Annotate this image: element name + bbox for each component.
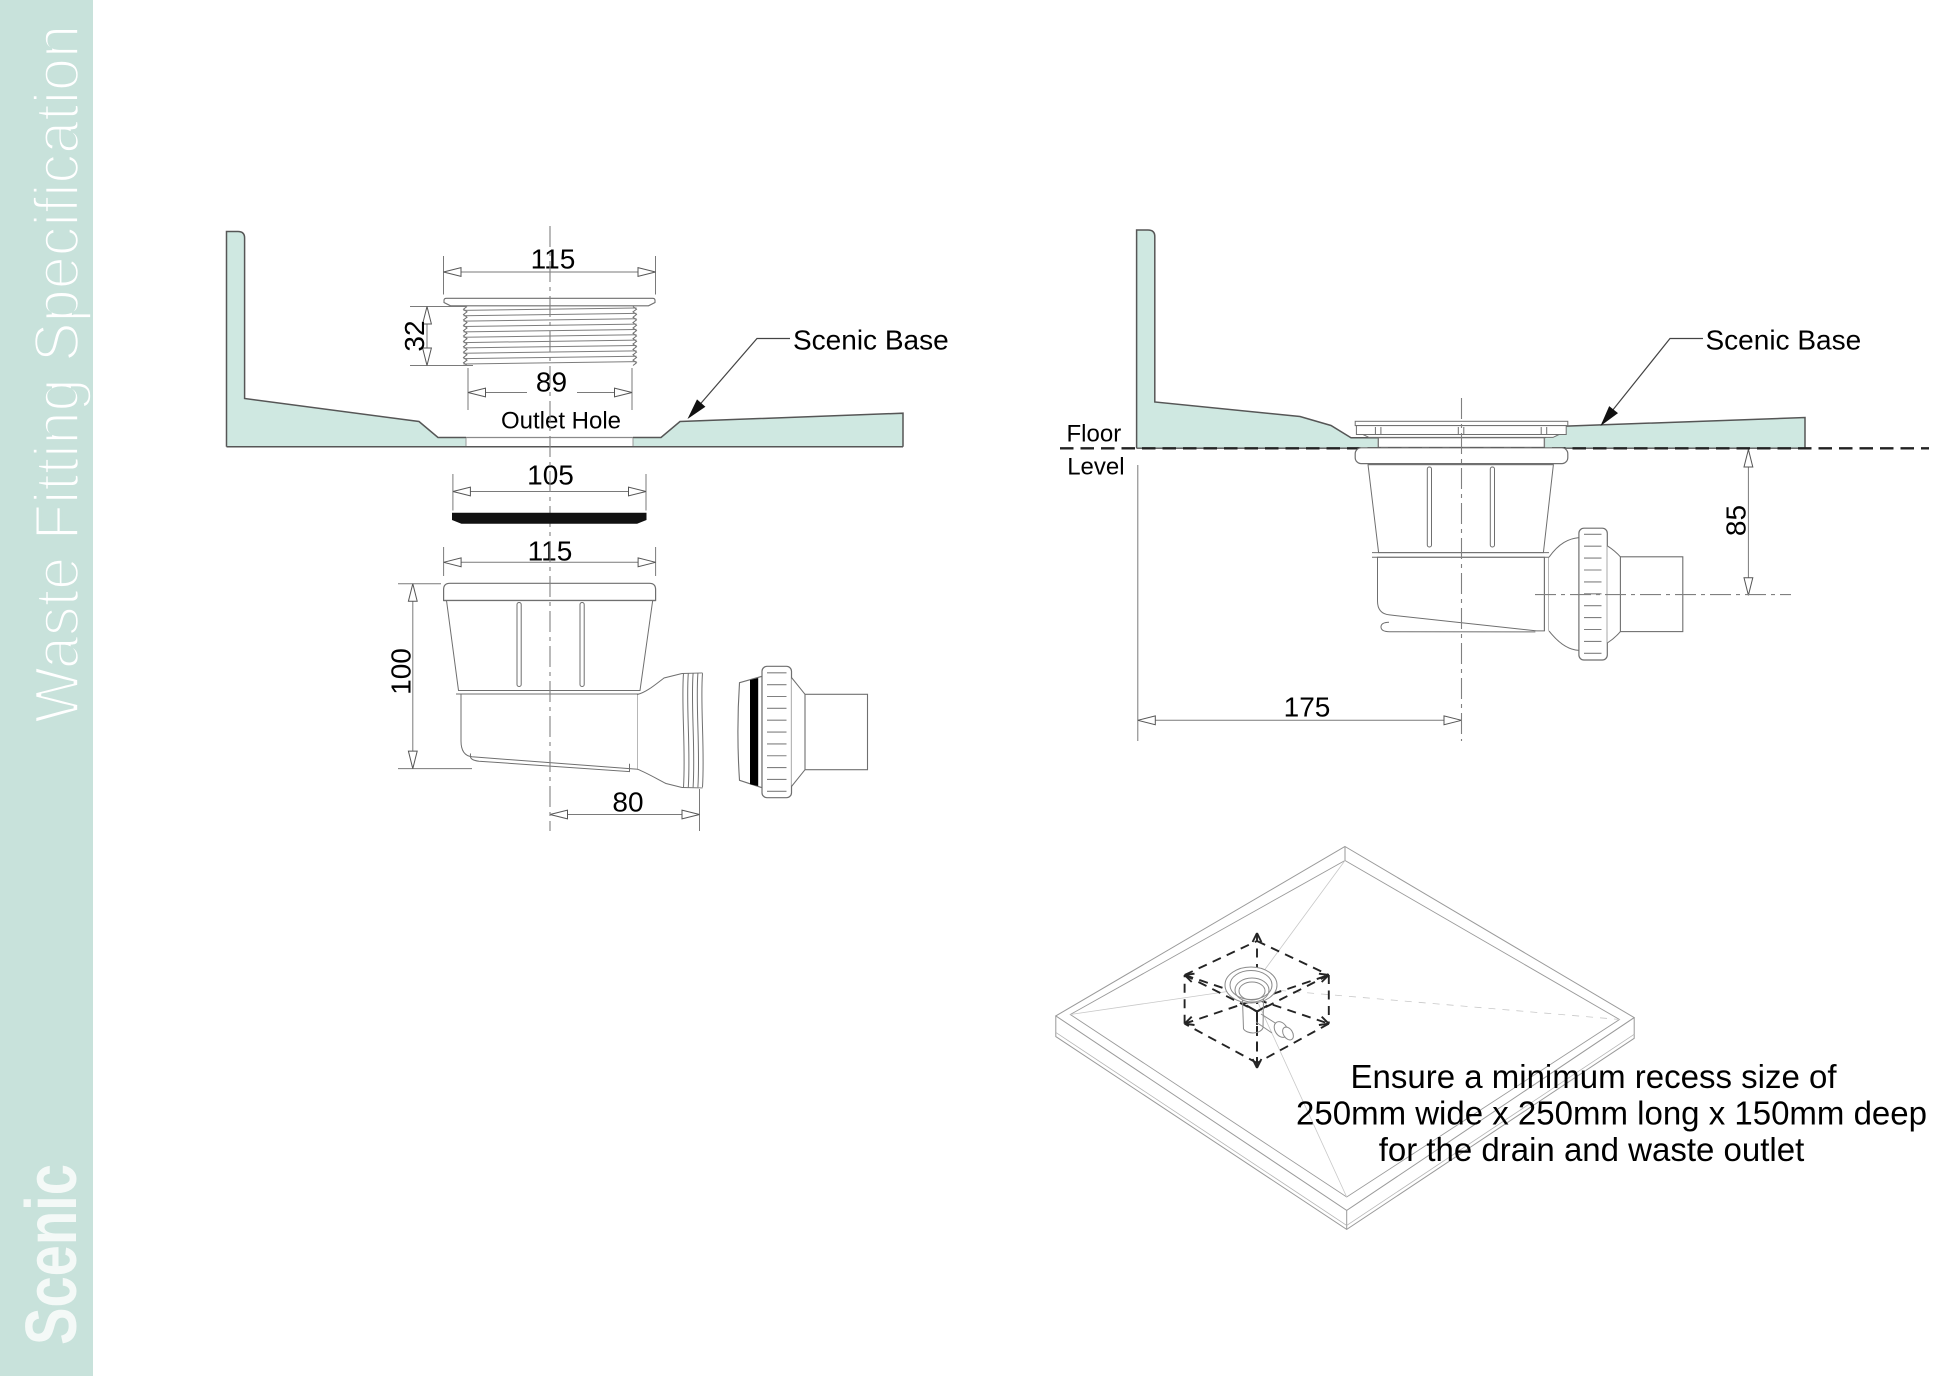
svg-text:32: 32: [399, 320, 430, 351]
svg-text:Waste Fitting Specification: Waste Fitting Specification: [23, 25, 93, 723]
svg-text:for the drain and waste outlet: for the drain and waste outlet: [1379, 1131, 1805, 1168]
svg-text:85: 85: [1721, 505, 1752, 536]
svg-text:100: 100: [386, 648, 417, 695]
svg-text:Ensure a minimum recess size o: Ensure a minimum recess size of: [1351, 1058, 1838, 1095]
svg-text:Scenic Base: Scenic Base: [1706, 325, 1862, 356]
svg-text:Floor: Floor: [1067, 421, 1122, 448]
svg-text:Level: Level: [1067, 453, 1124, 480]
svg-text:Scenic: Scenic: [12, 1164, 92, 1345]
svg-text:Scenic Base: Scenic Base: [793, 325, 949, 356]
svg-text:250mm wide x 250mm long x 150m: 250mm wide x 250mm long x 150mm deep: [1296, 1095, 1927, 1132]
svg-text:175: 175: [1284, 692, 1331, 723]
svg-text:89: 89: [536, 367, 567, 398]
svg-text:115: 115: [531, 244, 576, 275]
svg-text:Outlet Hole: Outlet Hole: [501, 408, 621, 435]
svg-text:80: 80: [612, 786, 643, 817]
